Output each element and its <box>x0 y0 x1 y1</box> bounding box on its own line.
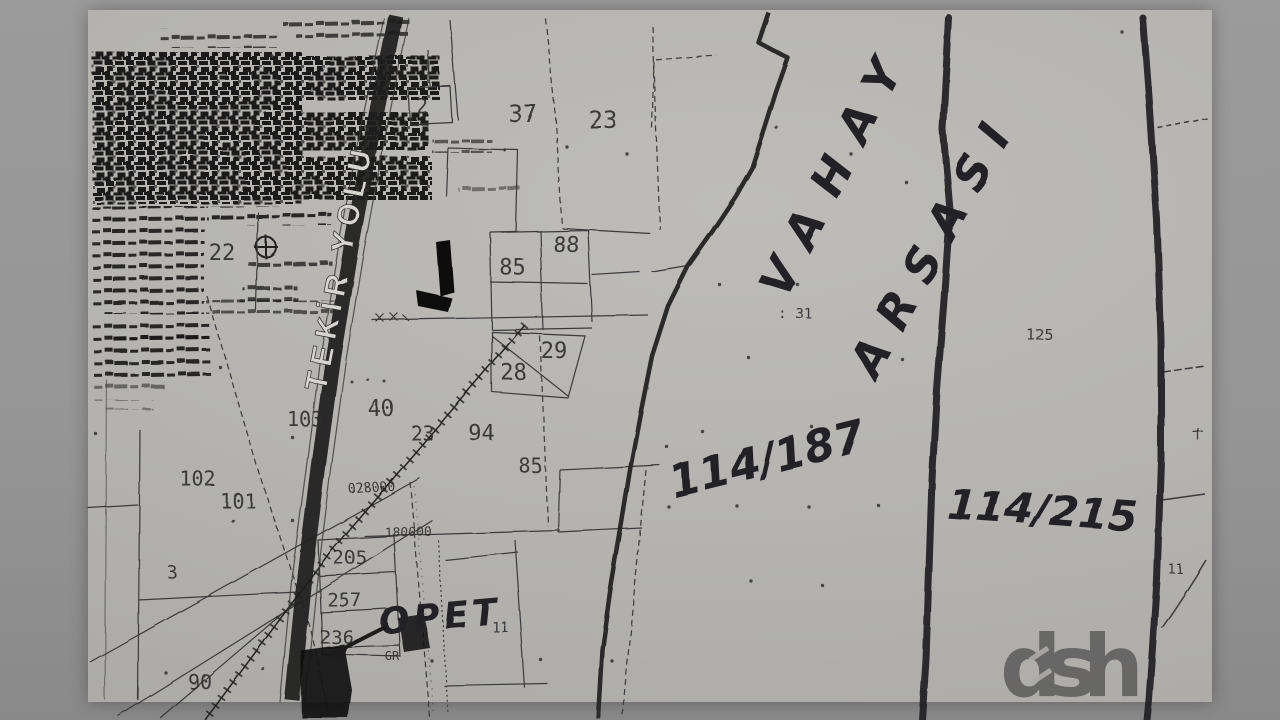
handwritten-parcel-114-215: 114/215 <box>945 479 1139 541</box>
map-drawing: TEKİR YOLU <box>0 0 1280 720</box>
parcel-label-101: 101 <box>220 489 256 513</box>
pen-divider-lines <box>922 18 1161 720</box>
parcel-label-31: : 31 <box>778 306 812 322</box>
parcel-label-257: 257 <box>327 589 361 611</box>
parcel-label-11-right: 11 <box>1168 563 1184 578</box>
parcel-label-29: 29 <box>541 339 568 364</box>
parcel-label-205: 205 <box>333 547 367 569</box>
watermark-text: dsh <box>1000 617 1138 717</box>
stamp-number-2: 180000 <box>384 524 431 541</box>
parcel-label-94: 94 <box>468 421 495 446</box>
parcel-label-85-lower: 85 <box>519 454 543 478</box>
scanned-cadastral-map-photo: TEKİR YOLU <box>0 0 1280 720</box>
parcel-label-85-upper: 85 <box>500 256 527 281</box>
parcel-label-28: 28 <box>501 361 528 386</box>
parcel-label-88: 88 <box>553 233 580 258</box>
parcel-label-40: 40 <box>368 397 395 422</box>
watermark-dsh-logo: dsh <box>1000 617 1138 717</box>
parcel-label-23-top: 23 <box>589 106 618 134</box>
handwritten-parcel-114-187: 114/187 <box>664 411 871 509</box>
wavy-boundary-line <box>598 12 788 718</box>
parcel-label-22: 22 <box>209 241 236 266</box>
parcel-label-90: 90 <box>188 670 212 694</box>
parcel-label-125: 125 <box>1026 326 1053 344</box>
hatched-track-line <box>205 325 525 720</box>
parcel-label-37: 37 <box>509 100 538 128</box>
parcel-label-102: 102 <box>180 467 216 491</box>
parcel-label-23-mid: 23 <box>410 421 434 445</box>
stamp-number-1: 028000 <box>348 480 396 497</box>
parcel-label-2: 2 <box>416 94 428 118</box>
handwritten-opet-label: OPET <box>377 591 502 642</box>
parcel-label-103: 103 <box>287 407 323 431</box>
map-label-gr: GR <box>385 649 400 663</box>
right-boundary-branches <box>1158 118 1210 628</box>
parcel-label-3: 3 <box>167 562 178 583</box>
